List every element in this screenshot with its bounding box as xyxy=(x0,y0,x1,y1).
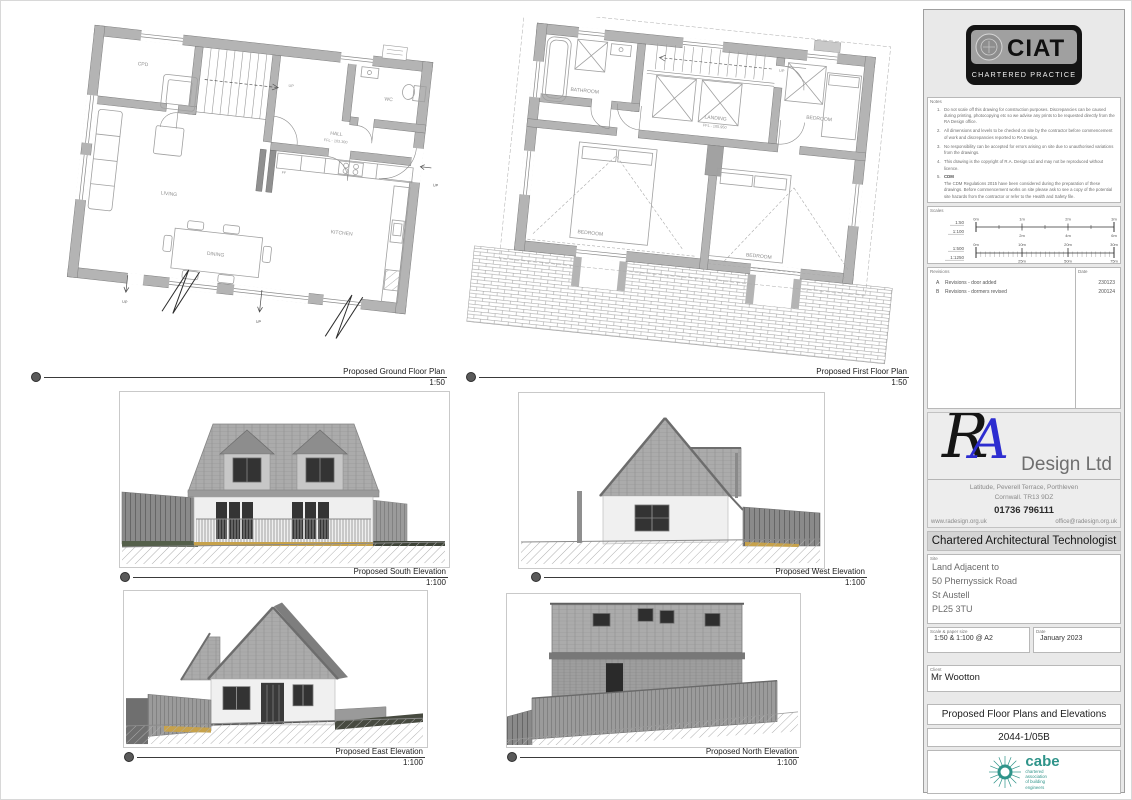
caption-scale: 1:100 xyxy=(777,758,797,767)
note-item: 4.This drawing is the copyright of R.A. … xyxy=(937,159,1115,172)
website: www.radesign.org.uk xyxy=(931,519,987,525)
caption-title: Proposed South Elevation xyxy=(353,567,446,576)
client-section: Client Mr Wootton xyxy=(927,665,1121,692)
notes-label: Notes xyxy=(928,98,1120,104)
revision-date: 200124 xyxy=(1076,289,1115,295)
title-block: CIAT CHARTERED PRACTICE Notes 1.Do not s… xyxy=(923,9,1125,793)
note-item: 2.All dimensions and levels to be checke… xyxy=(937,128,1115,141)
railing xyxy=(196,519,371,543)
scale-bars: 1:50 1:100 1:500 1:1250 0m xyxy=(928,213,1120,263)
site-section: Site Land Adjacent to 50 Phernyssick Roa… xyxy=(927,554,1121,624)
svg-text:4m: 4m xyxy=(1065,233,1071,238)
south-elevation-drawing xyxy=(120,392,447,565)
svg-text:0m: 0m xyxy=(973,242,979,247)
drawing-sheet: CPD WC HALL FFL - 103.300 LIVING KITCHEN… xyxy=(0,0,1132,800)
south-elevation-panel xyxy=(119,391,450,568)
caption-dot xyxy=(466,372,476,382)
ra-monogram: R A Design Ltd xyxy=(928,413,1120,479)
ground-plan-caption: Proposed Ground Floor Plan 1:50 xyxy=(31,368,447,390)
svg-text:1:50: 1:50 xyxy=(955,220,964,225)
scale-bar-2 xyxy=(976,247,1114,258)
first-plan-caption: Proposed First Floor Plan 1:50 xyxy=(466,368,909,390)
north-elevation-caption: Proposed North Elevation 1:100 xyxy=(507,748,799,770)
window xyxy=(635,505,669,531)
address-block: Latitude, Peverell Terrace, Porthleven C… xyxy=(928,479,1120,518)
phone-number: 01736 796111 xyxy=(928,504,1120,518)
main-roof xyxy=(188,424,379,492)
date-value: January 2023 xyxy=(1034,634,1120,642)
monogram-a: A xyxy=(970,413,1009,467)
ground-floor-plan-drawing: CPD WC HALL FFL - 103.300 LIVING KITCHEN… xyxy=(29,17,449,365)
revisions-section: Revisions A Revisions - door added B Rev… xyxy=(927,267,1121,409)
caption-rule xyxy=(544,577,867,578)
caption-title: Proposed Ground Floor Plan xyxy=(343,367,445,376)
date-box: Date January 2023 xyxy=(1033,627,1121,653)
site-line: PL25 3TU xyxy=(928,603,1120,617)
ciat-subtitle: CHARTERED PRACTICE xyxy=(972,70,1077,79)
site-line: 50 Phernyssick Road xyxy=(928,575,1120,589)
revision-row: A Revisions - door added xyxy=(936,280,1073,286)
eaves-band xyxy=(549,652,745,659)
revision-row: B Revisions - dormers revised xyxy=(936,289,1073,295)
ground-hatch xyxy=(521,539,820,564)
svg-text:1:1250: 1:1250 xyxy=(950,255,964,260)
ciat-logo: CIAT CHARTERED PRACTICE xyxy=(927,13,1121,97)
caption-scale: 1:100 xyxy=(426,578,446,587)
east-elevation-panel xyxy=(123,590,428,748)
east-elevation-drawing xyxy=(124,591,425,745)
caption-rule xyxy=(520,757,799,758)
caption-dot xyxy=(31,372,41,382)
up-label: UP xyxy=(779,69,785,74)
caption-title: Proposed West Elevation xyxy=(775,567,865,576)
scales-section: Scales 1:50 1:100 1:500 1:1250 xyxy=(927,206,1121,264)
east-elevation-caption: Proposed East Elevation 1:100 xyxy=(124,748,425,770)
svg-text:2m: 2m xyxy=(1019,233,1025,238)
cabe-logo: cabe chartered association of building e… xyxy=(927,750,1121,794)
svg-text:1m: 1m xyxy=(1019,217,1025,222)
caption-rule xyxy=(137,757,425,758)
cabe-name: cabe xyxy=(1025,754,1059,769)
scale-paper-value: 1:50 & 1:100 @ A2 xyxy=(928,634,1029,642)
chimney xyxy=(705,145,724,176)
up-label: UP xyxy=(288,84,294,89)
west-elevation-panel xyxy=(518,392,825,569)
cabe-desc: chartered association of building engine… xyxy=(1025,769,1059,790)
svg-text:2m: 2m xyxy=(1065,217,1071,222)
south-elevation-caption: Proposed South Elevation 1:100 xyxy=(120,568,448,590)
caption-scale: 1:100 xyxy=(845,578,865,587)
address-line1: Latitude, Peverell Terrace, Porthleven xyxy=(928,483,1120,493)
svg-text:30m: 30m xyxy=(1110,242,1118,247)
strapline-bar: Chartered Architectural Technologist xyxy=(927,531,1121,551)
svg-text:UP: UP xyxy=(122,300,128,305)
eaves xyxy=(188,490,379,497)
north-elevation-drawing xyxy=(507,594,798,745)
drawing-title: Proposed Floor Plans and Elevations xyxy=(927,704,1121,725)
room-label-wc: WC xyxy=(384,96,393,103)
svg-text:6m: 6m xyxy=(1111,233,1117,238)
caption-scale: 1:50 xyxy=(429,378,445,387)
svg-text:UP: UP xyxy=(433,183,439,188)
revisions-label: Revisions xyxy=(928,268,1075,274)
caption-title: Proposed First Floor Plan xyxy=(816,367,907,376)
caption-rule xyxy=(133,577,448,578)
client-name: Mr Wootton xyxy=(928,672,1120,683)
revisions-date-label: Date xyxy=(1076,268,1120,274)
site-line: Land Adjacent to xyxy=(928,561,1120,575)
gable-roof xyxy=(208,607,338,679)
ciat-acronym: CIAT xyxy=(1007,35,1065,62)
caption-scale: 1:100 xyxy=(403,758,423,767)
caption-dot xyxy=(531,572,541,582)
svg-text:1:500: 1:500 xyxy=(953,246,965,251)
svg-text:3m: 3m xyxy=(1111,217,1117,222)
west-elevation-drawing xyxy=(519,393,822,566)
note-item: 1.Do not scale off this drawing for cons… xyxy=(937,107,1115,126)
site-line: St Austell xyxy=(928,589,1120,603)
company-name: Design Ltd xyxy=(1021,454,1112,476)
svg-text:1:100: 1:100 xyxy=(953,229,965,234)
house xyxy=(188,424,379,546)
svg-text:0m: 0m xyxy=(973,217,979,222)
front-door xyxy=(261,683,284,724)
note-item-cdm: 5. CDMThe CDM Regulations 2015 have been… xyxy=(937,174,1115,200)
email: office@radesign.org.uk xyxy=(1055,519,1117,525)
downpipe xyxy=(735,453,738,498)
cabe-starburst-icon xyxy=(988,755,1022,789)
svg-text:50m: 50m xyxy=(1064,259,1072,264)
left-post xyxy=(577,491,582,543)
address-line2: Cornwall. TR13 9DZ xyxy=(928,493,1120,503)
notes-section: Notes 1.Do not scale off this drawing fo… xyxy=(927,97,1121,203)
svg-text:10m: 10m xyxy=(1018,242,1026,247)
caption-dot xyxy=(124,752,134,762)
drawing-number: 2044-1/05B xyxy=(927,728,1121,747)
room-label-cpd: CPD xyxy=(137,61,149,68)
left-fence xyxy=(122,492,198,547)
svg-text:25m: 25m xyxy=(1018,259,1026,264)
north-elevation-panel xyxy=(506,593,801,748)
svg-text:UP: UP xyxy=(256,320,262,325)
west-elevation-caption: Proposed West Elevation 1:100 xyxy=(531,568,867,590)
caption-rule xyxy=(44,377,447,378)
scale-bar-1 xyxy=(976,222,1114,232)
right-fence xyxy=(372,500,445,546)
brand-section: R A Design Ltd Latitude, Peverell Terrac… xyxy=(927,412,1121,528)
first-floor-plan-drawing: BATHROOM LANDING FFL - 105.950 BEDROOM B… xyxy=(464,17,911,367)
svg-text:75m: 75m xyxy=(1110,259,1118,264)
caption-title: Proposed North Elevation xyxy=(706,747,797,756)
scale-paper-box: Scale & paper size 1:50 & 1:100 @ A2 xyxy=(927,627,1030,653)
caption-title: Proposed East Elevation xyxy=(335,747,423,756)
note-item: 3.No responsibility can be accepted for … xyxy=(937,144,1115,157)
revision-date: 230123 xyxy=(1076,280,1115,286)
caption-scale: 1:50 xyxy=(891,378,907,387)
caption-dot xyxy=(120,572,130,582)
caption-rule xyxy=(479,377,909,378)
svg-text:20m: 20m xyxy=(1064,242,1072,247)
caption-dot xyxy=(507,752,517,762)
